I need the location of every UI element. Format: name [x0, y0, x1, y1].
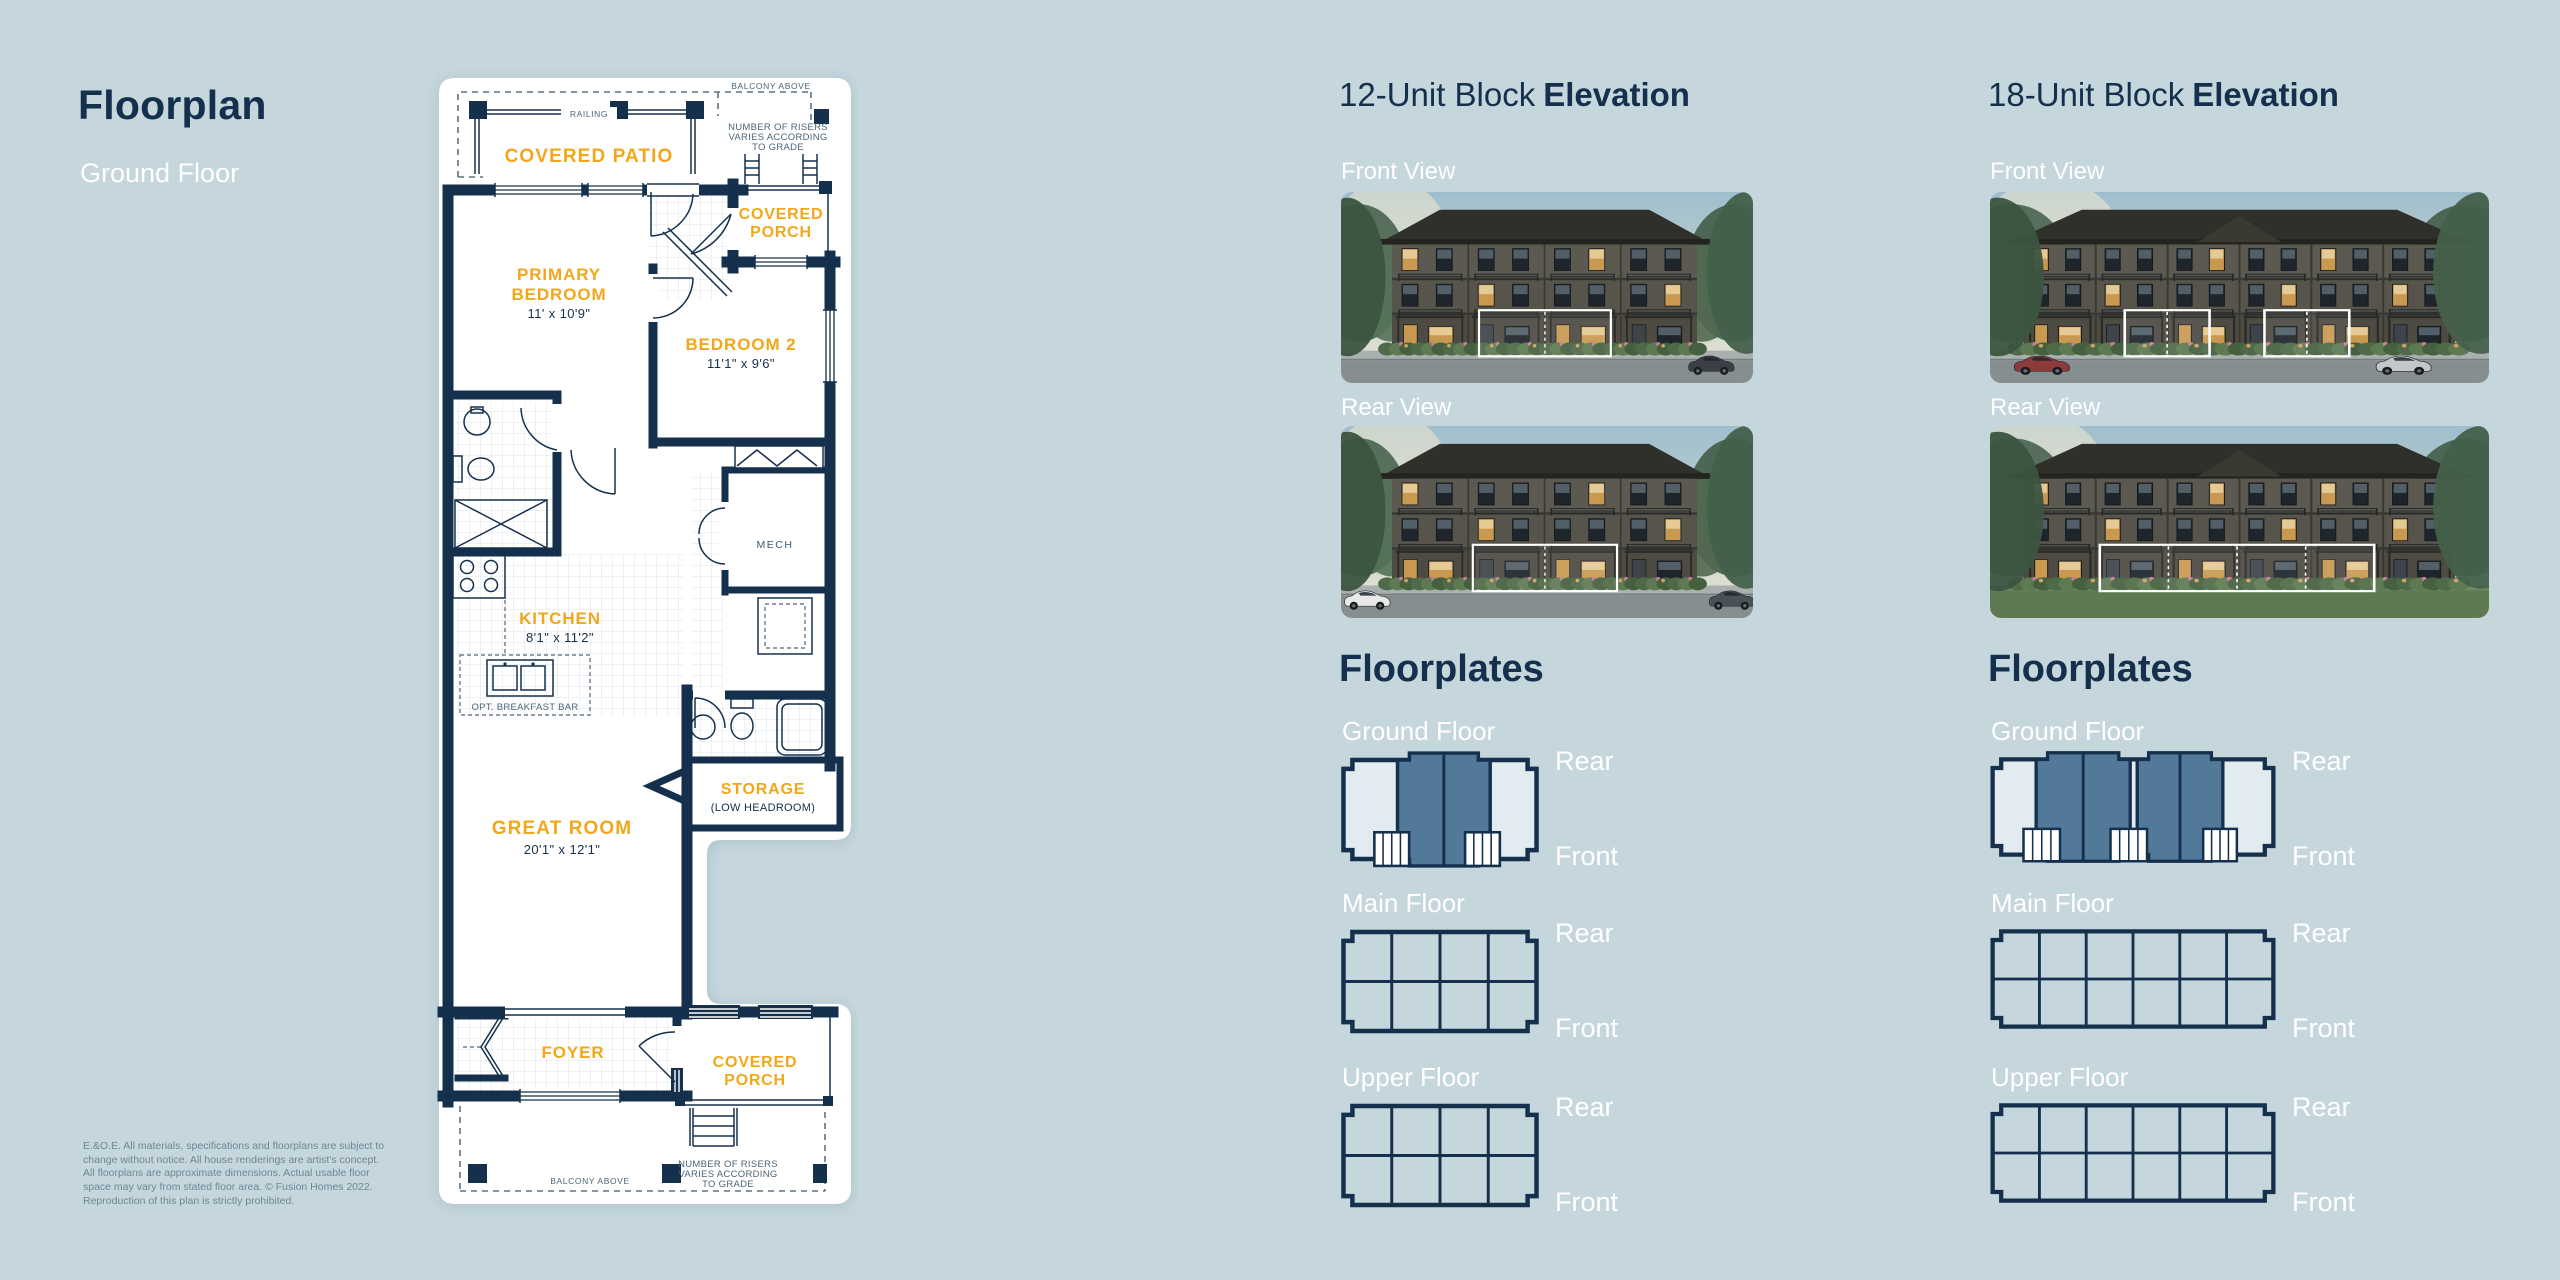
sidelight-window: [671, 1068, 683, 1094]
window: [520, 1089, 620, 1103]
floor-label-ground: Ground Floor: [1342, 716, 1495, 747]
floorplate-ground-18: [1990, 748, 2276, 866]
floorplates-title: Floorplates: [1339, 648, 1544, 691]
patio-post: [469, 101, 487, 119]
window: [588, 183, 643, 197]
svg-text:BEDROOM: BEDROOM: [511, 285, 606, 304]
great-room-label: GREAT ROOM: [492, 818, 632, 839]
floorplate-main-18: [1990, 920, 2276, 1038]
front-label: Front: [2292, 1013, 2412, 1044]
window: [823, 310, 837, 382]
storage-sub-label: (LOW HEADROOM): [711, 802, 815, 814]
elevation-front-rendering: [1341, 192, 1753, 383]
front-view-label: Front View: [1341, 158, 1455, 186]
front-label: Front: [1555, 1187, 1675, 1218]
block-12-title: 12-Unit BlockElevation: [1339, 76, 1690, 114]
elevation-rear-image-18: [1990, 426, 2489, 618]
block-18-unit: 18-Unit BlockElevation Front View Rear V…: [1988, 0, 2548, 1280]
disclaimer-text: E.&O.E. All materials, specifications an…: [83, 1140, 385, 1208]
storage-label: STORAGE: [721, 781, 805, 798]
elevation-front-image-18: [1990, 192, 2489, 383]
front-view-label: Front View: [1990, 158, 2104, 186]
floorplate-side-labels: Rear Front: [1555, 746, 1675, 872]
foyer-label: FOYER: [541, 1043, 604, 1062]
floorplate-upper-18: [1990, 1094, 2276, 1212]
floor-label-upper: Upper Floor: [1342, 1062, 1479, 1093]
great-room-dims: 20'1" x 12'1": [524, 842, 601, 857]
floorplate-side-labels: Rear Front: [2292, 746, 2412, 872]
window: [758, 1005, 813, 1019]
floorplate-ground-12: [1341, 748, 1539, 871]
elevation-front-image-12: [1341, 192, 1753, 383]
front-label: Front: [2292, 1187, 2412, 1218]
covered-porch-bottom-label: COVERED: [713, 1054, 798, 1071]
patio-post: [686, 101, 704, 119]
rear-label: Rear: [1555, 918, 1675, 949]
window: [687, 1005, 740, 1019]
floorplate-upper-12: [1341, 1094, 1539, 1217]
floorplates-title: Floorplates: [1988, 648, 2193, 691]
block-18-title-bold: Elevation: [2192, 76, 2339, 113]
kitchen-dims: 8'1" x 11'2": [526, 630, 594, 645]
elevation-rear-rendering: [1341, 426, 1753, 618]
floorplate-side-labels: Rear Front: [2292, 918, 2412, 1044]
rear-closet-chevrons: [735, 446, 823, 468]
block-12-title-bold: Elevation: [1543, 76, 1690, 113]
rear-view-label: Rear View: [1990, 394, 2100, 422]
elevation-rear-image-12: [1341, 426, 1753, 618]
front-label: Front: [2292, 841, 2412, 872]
rear-view-label: Rear View: [1341, 394, 1451, 422]
covered-patio-label: COVERED PATIO: [505, 146, 674, 167]
bedroom2-label: BEDROOM 2: [685, 335, 796, 354]
svg-text:TO GRADE: TO GRADE: [702, 1179, 754, 1190]
balcony-above-top-label: BALCONY ABOVE: [731, 81, 810, 91]
floor-label-main: Main Floor: [1342, 888, 1465, 919]
window: [755, 255, 807, 269]
front-label: Front: [1555, 1013, 1675, 1044]
floorplan-drawing: RAILING BALCONY ABOVE COVERED PATIO NUMB…: [425, 70, 857, 1242]
floor-label-upper: Upper Floor: [1991, 1062, 2128, 1093]
svg-text:TO GRADE: TO GRADE: [752, 142, 804, 153]
balcony-above-bottom-label: BALCONY ABOVE: [550, 1176, 629, 1186]
balcony-post: [813, 1164, 827, 1183]
block-12-title-prefix: 12-Unit Block: [1339, 76, 1535, 113]
railing-label: RAILING: [570, 109, 608, 119]
block-18-title-prefix: 18-Unit Block: [1988, 76, 2184, 113]
floorplate-side-labels: Rear Front: [1555, 1092, 1675, 1218]
primary-bedroom-dims: 11' x 10'9": [528, 306, 591, 321]
balcony-post: [468, 1164, 487, 1183]
floorplate-side-labels: Rear Front: [1555, 918, 1675, 1044]
mech-label: MECH: [757, 539, 794, 551]
page-subtitle: Ground Floor: [80, 158, 239, 189]
breakfast-bar-label: OPT. BREAKFAST BAR: [471, 702, 578, 713]
rear-label: Rear: [1555, 746, 1675, 777]
rear-label: Rear: [2292, 1092, 2412, 1123]
floor-label-ground: Ground Floor: [1991, 716, 2144, 747]
svg-text:PORCH: PORCH: [724, 1072, 786, 1089]
rear-label: Rear: [2292, 746, 2412, 777]
svg-text:PORCH: PORCH: [750, 224, 812, 241]
window: [495, 183, 582, 197]
kitchen-label: KITCHEN: [519, 609, 601, 628]
front-label: Front: [1555, 841, 1675, 872]
primary-bedroom-label: PRIMARY: [517, 265, 601, 284]
rear-label: Rear: [2292, 918, 2412, 949]
block-18-title: 18-Unit BlockElevation: [1988, 76, 2339, 114]
page: Floorplan Ground Floor E.&O.E. All mater…: [0, 0, 2560, 1280]
rear-label: Rear: [1555, 1092, 1675, 1123]
block-12-unit: 12-Unit BlockElevation Front View Rear V…: [1339, 0, 1779, 1280]
floorplate-main-12: [1341, 920, 1539, 1043]
elevation-front-rendering: [1990, 192, 2489, 383]
covered-porch-top-label: COVERED: [739, 206, 824, 223]
floor-label-main: Main Floor: [1991, 888, 2114, 919]
page-title: Floorplan: [78, 82, 267, 129]
bedroom2-dims: 11'1" x 9'6": [707, 356, 775, 371]
floorplate-side-labels: Rear Front: [2292, 1092, 2412, 1218]
elevation-rear-rendering: [1990, 426, 2489, 618]
